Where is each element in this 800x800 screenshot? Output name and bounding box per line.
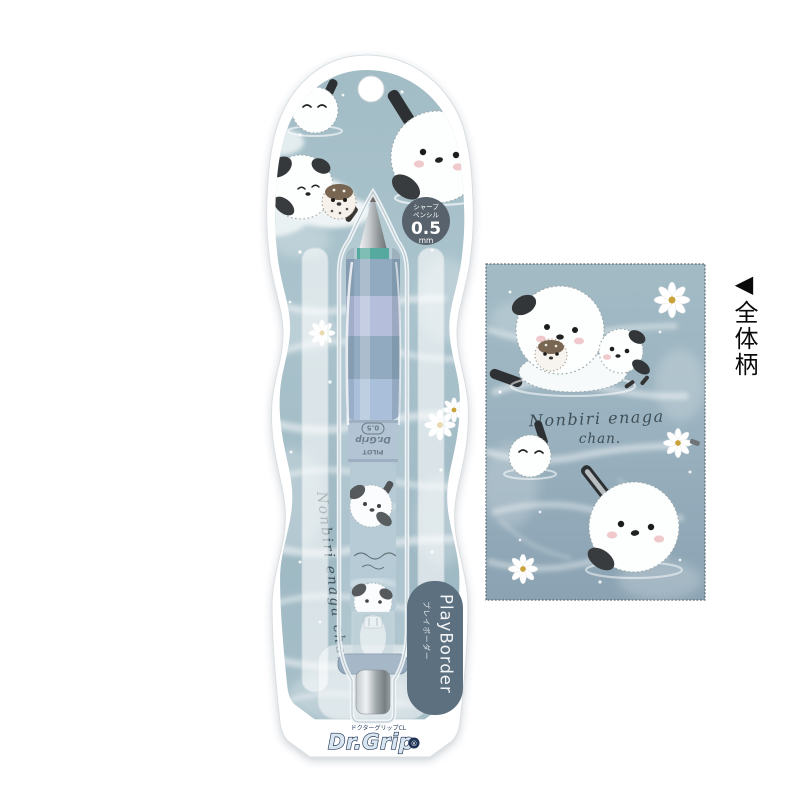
daisy-icon bbox=[654, 282, 690, 318]
daisy-icon bbox=[447, 71, 481, 105]
product-photo: Nonbiri enaga chan PILOT Dr.Grip 0.5 bbox=[0, 0, 800, 800]
blister-dome bbox=[339, 192, 407, 722]
badge-line2: ペンシル bbox=[413, 211, 440, 219]
daisy-icon bbox=[663, 428, 692, 457]
hang-hole bbox=[358, 76, 384, 102]
badge-line1: シャープ bbox=[413, 203, 439, 211]
spec-badge: シャープ ペンシル 0.5 mm bbox=[402, 197, 450, 245]
panel-script-line2: chan. bbox=[579, 431, 621, 447]
pill-subtitle: プレイボーダー bbox=[422, 601, 432, 661]
shimaenaga-bird-patched-illustration bbox=[253, 152, 333, 219]
pattern-panel: Nonbiri enaga chan. bbox=[482, 264, 705, 600]
packshot-canvas: Nonbiri enaga chan PILOT Dr.Grip 0.5 bbox=[0, 0, 800, 800]
playborder-pill: PlayBorder プレイボーダー bbox=[407, 581, 463, 715]
daisy-icon bbox=[508, 554, 537, 583]
drgrip-logo-mark: ® bbox=[411, 740, 418, 748]
pill-title: PlayBorder bbox=[437, 594, 456, 694]
badge-size-unit: mm bbox=[419, 236, 434, 245]
drgrip-logo-name: Dr.Grip bbox=[328, 730, 414, 754]
panel-label: ◀全体柄 bbox=[730, 270, 758, 378]
